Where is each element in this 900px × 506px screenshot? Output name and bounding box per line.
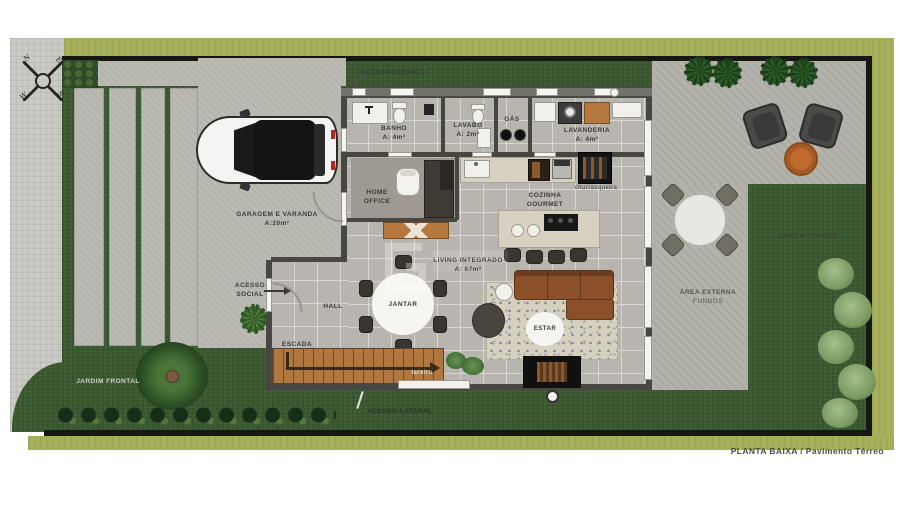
label-acesso-lateral: ACESSO LATERAL	[367, 408, 432, 416]
entry-plant	[240, 304, 268, 334]
shower-head-icon	[368, 106, 370, 114]
car-rear-window	[314, 124, 325, 176]
label-home-office-2: OFFICE	[364, 198, 391, 206]
gas-bottle	[500, 129, 512, 141]
barbecue-skewers	[583, 157, 607, 179]
fireplace-inner	[537, 362, 567, 382]
estar-label: ESTAR	[534, 326, 556, 332]
driveway-strip	[109, 88, 136, 346]
label-acesso-social-2: SOCIAL	[236, 291, 263, 299]
dining-chair	[433, 280, 447, 297]
side-table	[495, 283, 513, 301]
label-living-2: A: 67m²	[455, 266, 482, 274]
lounge-cushion	[751, 111, 782, 143]
social-door-threshold	[266, 278, 272, 312]
rear-walkway	[398, 380, 470, 389]
window	[483, 88, 511, 96]
label-jardim-frontal: JARDIM FRONTAL	[76, 378, 140, 386]
dining-chair	[433, 316, 447, 333]
car	[196, 110, 338, 190]
wall-left-upper2	[341, 226, 347, 260]
compass-ring	[35, 73, 51, 89]
fridge-top	[554, 160, 570, 166]
driveway-strip	[170, 88, 198, 346]
cooktop-burner	[568, 218, 573, 223]
label-area-externa-2: FUNDOS	[693, 298, 723, 306]
palm-plant	[712, 58, 742, 88]
window-banho-side	[341, 128, 347, 152]
palm-plant	[788, 58, 818, 88]
laundry-wood-counter	[584, 102, 610, 124]
gas-bottle	[514, 129, 526, 141]
label-jardim-fundos: JARDIM FUNDOS	[778, 233, 838, 241]
sofa	[514, 270, 614, 300]
lawn-strip-right	[872, 38, 894, 450]
glass-door	[644, 336, 652, 380]
label-hall: HALL	[323, 303, 342, 311]
garden-bush	[822, 398, 858, 428]
social-arrow-line	[264, 290, 285, 292]
car-taillight	[331, 130, 335, 139]
hedge-top	[62, 60, 100, 88]
label-living-1: LIVING INTEGRADO	[433, 257, 503, 265]
island-sink	[527, 224, 540, 237]
label-cozinha-1: COZINHA	[529, 192, 562, 200]
palm-plant	[684, 56, 714, 86]
sheet-title: PLANTA BAIXA / Pavimento Térreo	[731, 446, 884, 456]
label-gas: GÁS	[504, 116, 519, 124]
glass-door	[644, 266, 652, 328]
label-banho-2: A: 4m²	[383, 134, 406, 142]
driveway-strip	[141, 88, 165, 346]
label-lavanderia-2: A: 4m²	[576, 136, 599, 144]
compass-rose: N E W S	[20, 56, 66, 108]
sideboard	[383, 222, 449, 239]
wall-office-right	[455, 157, 459, 220]
toilet-bowl	[393, 108, 406, 124]
bath-cabinet	[424, 104, 434, 115]
car-roof	[254, 120, 316, 180]
laundry-counter	[534, 102, 556, 122]
glass-door	[644, 186, 652, 248]
cooktop-burner	[558, 218, 563, 223]
watermark-logo	[380, 240, 426, 294]
faucet	[474, 162, 478, 166]
window	[390, 88, 414, 96]
washing-machine-door	[564, 106, 576, 118]
label-lavabo-1: LAVABO	[453, 122, 482, 130]
label-home-office-1: HOME	[366, 189, 387, 197]
label-area-externa-1: ÁREA EXTERNA	[680, 289, 736, 297]
cooktop-burner	[548, 218, 553, 223]
oven-rack	[532, 162, 540, 178]
label-churrasqueira: churrasqueira	[575, 185, 618, 192]
pouf	[472, 303, 505, 338]
lawn-strip-top	[64, 38, 894, 56]
door-swing-arc	[273, 280, 303, 312]
deck-bush	[462, 357, 484, 375]
front-tree-trunk	[166, 370, 179, 383]
office-shelf	[440, 160, 454, 190]
social-arrow-head	[284, 287, 291, 295]
label-lavanderia-1: LAVANDERIA	[564, 127, 610, 135]
laundry-shelf	[612, 102, 642, 118]
dining-label: JANTAR	[389, 301, 418, 308]
bar-stool	[570, 248, 587, 262]
label-lavabo-2: A: 2m²	[457, 131, 480, 139]
estar-label-bubble: ESTAR	[526, 312, 564, 346]
exterior-light	[546, 390, 559, 403]
driveway-strip	[74, 88, 104, 346]
staircase	[272, 348, 444, 384]
label-acesso-social-1: ACESSO	[235, 282, 265, 290]
bar-stool	[548, 250, 565, 264]
garden-bush	[838, 364, 876, 400]
sofa-chaise	[566, 299, 614, 320]
wall-lavabo-gas	[494, 98, 498, 152]
garden-bush	[818, 330, 854, 364]
wall-gas-lavanderia	[528, 98, 532, 152]
glass-door	[644, 120, 652, 176]
banho-door	[388, 152, 412, 157]
car-taillight	[331, 161, 335, 170]
label-banho-1: BANHO	[381, 125, 407, 133]
bar-stool	[526, 250, 543, 264]
ceiling-light	[610, 88, 619, 97]
palm-plant	[760, 56, 790, 86]
label-lareira: lareira	[411, 370, 432, 377]
label-escada: ESCADA	[282, 341, 312, 349]
label-garagem-1: GARAGEM E VARANDA	[236, 211, 318, 219]
lot-border-bottom	[44, 430, 872, 436]
floor-plan-canvas: N E W S	[0, 0, 900, 506]
garden-bush	[834, 292, 872, 328]
label-acesso-servico: ACESSO SERVIÇO	[361, 69, 426, 77]
fire-table	[784, 142, 818, 176]
wall-hall-top	[271, 257, 347, 262]
island-sink	[511, 224, 524, 237]
label-garagem-2: A:20m²	[265, 220, 290, 228]
wall-banho-lavabo	[441, 98, 445, 152]
door-swing-arc	[311, 192, 343, 225]
label-cozinha-2: GOURMET	[527, 201, 563, 209]
wall-left-lower-a	[266, 260, 272, 278]
office-chair-back	[400, 170, 416, 176]
shrub-row	[54, 400, 336, 430]
window	[536, 88, 558, 96]
window	[352, 88, 366, 96]
stair-arrow-line	[286, 367, 432, 370]
patio-table	[674, 194, 726, 246]
dining-chair	[359, 280, 373, 297]
garden-bush	[818, 258, 854, 290]
dining-chair	[359, 316, 373, 333]
lounge-cushion	[807, 111, 837, 143]
